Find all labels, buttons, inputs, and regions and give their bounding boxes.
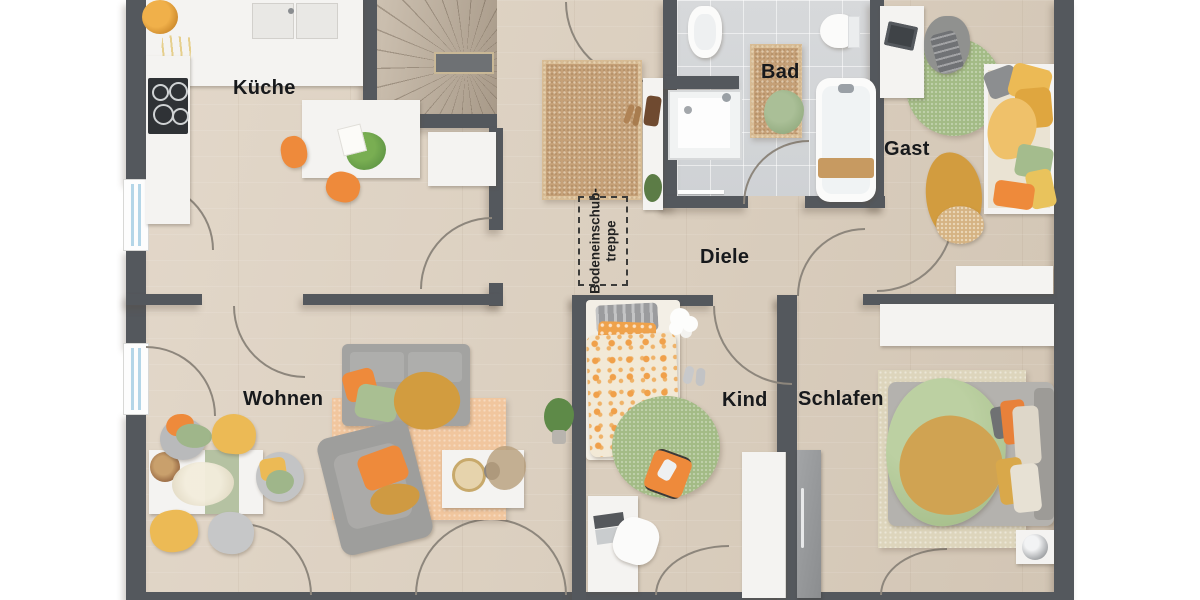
kitchen-sink-2 bbox=[296, 3, 338, 39]
window-frame-kitchen bbox=[124, 180, 148, 250]
schlafen-pillow-beige-2 bbox=[1010, 463, 1043, 514]
wardrobe-handle bbox=[801, 488, 804, 548]
cooktop-burner-1 bbox=[152, 84, 169, 101]
outer-wall-left-3 bbox=[126, 412, 146, 600]
window-glass-kitchen-2 bbox=[138, 184, 141, 246]
towel-bar bbox=[678, 190, 724, 194]
shower-head bbox=[722, 93, 731, 102]
floor-plan: Bodeneinschub- treppe bbox=[0, 0, 1200, 600]
fruit-plate-decor bbox=[142, 0, 178, 34]
toilet-tank bbox=[848, 16, 860, 48]
schlafen-pillow-beige-1 bbox=[1012, 405, 1042, 465]
kind-slipper-2 bbox=[695, 368, 705, 387]
room-label-gast: Gast bbox=[884, 138, 930, 161]
outer-wall-right bbox=[1054, 0, 1074, 600]
window-glass-kitchen bbox=[131, 184, 134, 246]
bath-wall-bottom-left bbox=[663, 196, 748, 208]
schlafen-sideboard bbox=[880, 304, 1054, 346]
room-label-schlafen: Schlafen bbox=[798, 388, 884, 411]
stair-landing-edge bbox=[434, 52, 494, 74]
room-label-diele: Diele bbox=[700, 246, 749, 269]
window-glass-living-2 bbox=[138, 348, 141, 410]
kind-wardrobe bbox=[742, 452, 786, 598]
shower-drain bbox=[684, 106, 692, 114]
coffee-table-tray bbox=[452, 458, 486, 492]
living-plant-pot bbox=[552, 430, 566, 444]
nightstand-lamp bbox=[1022, 534, 1048, 560]
cooktop-burner-3 bbox=[153, 104, 174, 125]
cooktop-burner-2 bbox=[169, 82, 188, 101]
kind-wall-left bbox=[572, 296, 586, 600]
attic-ladder-label-line2: treppe bbox=[603, 188, 619, 294]
window-glass-living bbox=[131, 348, 134, 410]
window-frame-living bbox=[124, 344, 148, 414]
gast-desk bbox=[880, 6, 924, 98]
kitchen-faucet bbox=[288, 8, 294, 14]
room-label-kueche: Küche bbox=[233, 77, 296, 100]
room-label-kind: Kind bbox=[722, 389, 768, 412]
cloud-decor bbox=[670, 308, 690, 328]
shower-partition bbox=[663, 76, 739, 89]
cooktop-burner-4 bbox=[172, 108, 189, 125]
bathtub-faucet bbox=[838, 84, 854, 93]
gast-pillow-orange bbox=[992, 179, 1035, 210]
radiator-under-stairs bbox=[428, 132, 496, 186]
room-label-bad: Bad bbox=[761, 61, 800, 84]
mid-wall-b bbox=[303, 294, 503, 305]
room-label-wohnen: Wohnen bbox=[243, 388, 323, 411]
bathtub-caddy bbox=[818, 158, 874, 178]
gast-jute-pouf bbox=[936, 206, 984, 244]
attic-ladder-annotation: Bodeneinschub- treppe bbox=[578, 196, 628, 286]
outer-wall-left-1 bbox=[126, 0, 146, 182]
hall-rug bbox=[542, 60, 642, 200]
attic-ladder-label-line1: Bodeneinschub- bbox=[587, 188, 603, 294]
bath-sink-basin bbox=[694, 14, 716, 50]
attic-ladder-label: Bodeneinschub- treppe bbox=[587, 188, 618, 294]
mid-wall-a bbox=[126, 294, 202, 305]
gast-sideboard bbox=[956, 266, 1053, 294]
